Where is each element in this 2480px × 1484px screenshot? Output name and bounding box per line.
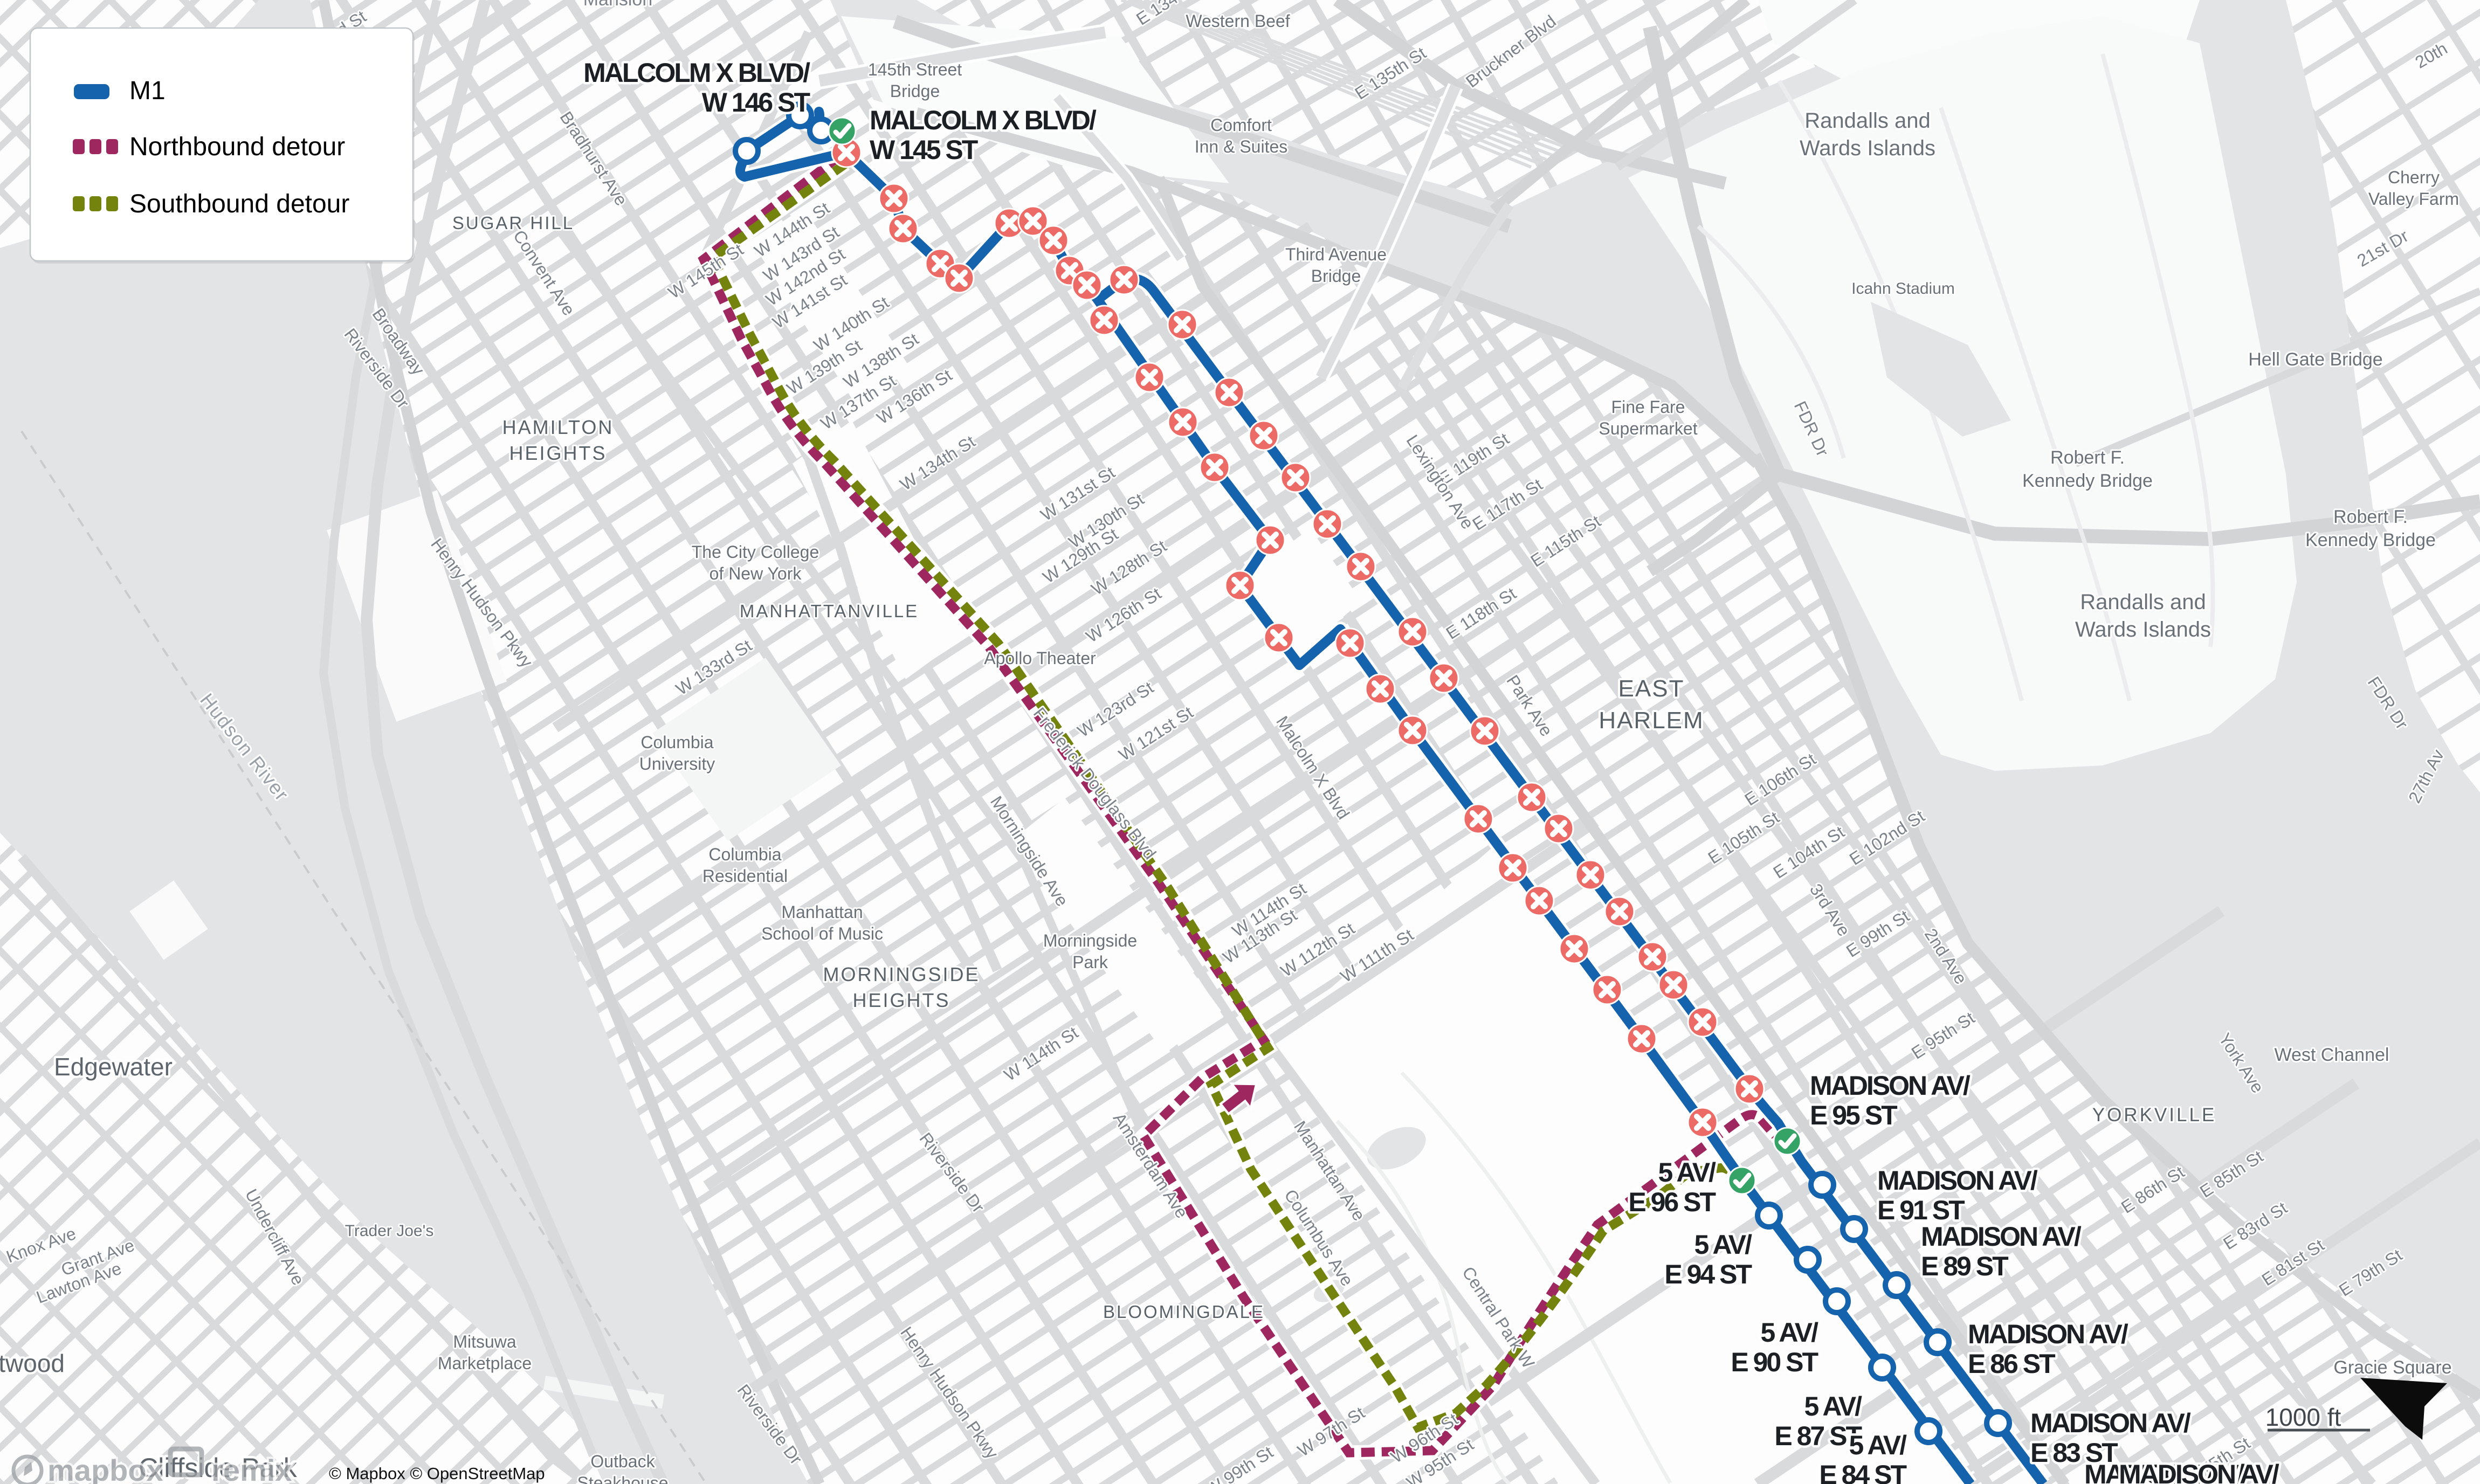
svg-text:E 89 ST: E 89 ST (1921, 1251, 2008, 1281)
svg-text:Northbound detour: Northbound detour (129, 133, 345, 161)
svg-text:E 84 ST: E 84 ST (1819, 1460, 1906, 1484)
svg-text:MADISON AV/: MADISON AV/ (1810, 1071, 1971, 1101)
svg-text:E 90 ST: E 90 ST (1731, 1347, 1818, 1377)
svg-text:Hell Gate Bridge: Hell Gate Bridge (2248, 349, 2382, 370)
svg-text:145th Street: 145th Street (868, 60, 962, 79)
svg-text:The City College: The City College (692, 542, 819, 562)
svg-text:5 AV/: 5 AV/ (1849, 1430, 1907, 1460)
svg-text:Steakhouse: Steakhouse (577, 1473, 668, 1484)
svg-text:Mitsuwa: Mitsuwa (453, 1332, 516, 1351)
svg-text:E 95 ST: E 95 ST (1810, 1100, 1897, 1130)
svg-text:Western Beef: Western Beef (1186, 11, 1290, 31)
svg-text:Gracie Square: Gracie Square (2333, 1357, 2451, 1378)
svg-text:1000 ft: 1000 ft (2265, 1403, 2341, 1431)
svg-text:E 91 ST: E 91 ST (1877, 1195, 1965, 1225)
svg-text:Supermarket: Supermarket (1599, 419, 1697, 438)
svg-text:MADISON AV/: MADISON AV/ (1968, 1319, 2128, 1349)
svg-text:Columbia: Columbia (708, 845, 781, 864)
svg-text:Robert F.: Robert F. (2333, 507, 2408, 527)
svg-text:Outback: Outback (590, 1452, 655, 1471)
svg-text:Cherry: Cherry (2388, 168, 2440, 187)
svg-text:Inn & Suites: Inn & Suites (1195, 137, 1288, 156)
svg-text:Kennedy Bridge: Kennedy Bridge (2022, 471, 2153, 491)
svg-text:MORNINGSIDE: MORNINGSIDE (823, 963, 980, 985)
svg-text:W 145 ST: W 145 ST (870, 135, 978, 165)
svg-text:HARLEM: HARLEM (1599, 707, 1704, 734)
svg-text:HAMILTON: HAMILTON (502, 416, 614, 438)
svg-text:mapbox: mapbox (47, 1453, 163, 1484)
svg-text:BLOOMINGDALE: BLOOMINGDALE (1103, 1302, 1265, 1322)
svg-text:MADISON AV/: MADISON AV/ (1877, 1165, 2038, 1196)
svg-text:Kennedy Bridge: Kennedy Bridge (2305, 530, 2436, 550)
svg-text:HEIGHTS: HEIGHTS (509, 442, 607, 464)
svg-text:Third Avenue: Third Avenue (1285, 245, 1387, 264)
svg-text:antwood: antwood (0, 1349, 65, 1377)
svg-text:Southbound detour: Southbound detour (129, 190, 349, 218)
svg-text:M1: M1 (129, 77, 166, 105)
svg-text:Randalls and: Randalls and (2080, 590, 2206, 614)
svg-text:Edgewater: Edgewater (54, 1053, 173, 1081)
svg-text:5 AV/: 5 AV/ (1694, 1230, 1753, 1260)
svg-text:of New York: of New York (709, 564, 802, 583)
svg-text:remix: remix (211, 1453, 292, 1484)
svg-text:Park: Park (1072, 952, 1108, 972)
svg-text:MADISON AV/: MADISON AV/ (1921, 1221, 2082, 1252)
svg-text:E 94 ST: E 94 ST (1664, 1259, 1752, 1289)
svg-text:E 96 ST: E 96 ST (1628, 1187, 1716, 1217)
svg-text:Residential: Residential (702, 866, 788, 886)
svg-text:Bridge: Bridge (1311, 266, 1361, 286)
svg-text:Columbia: Columbia (640, 733, 713, 752)
svg-text:EAST: EAST (1618, 675, 1685, 702)
svg-text:W 146 ST: W 146 ST (702, 87, 810, 118)
svg-text:MALCOLM X BLVD/: MALCOLM X BLVD/ (583, 58, 810, 88)
svg-text:5 AV/: 5 AV/ (1761, 1317, 1819, 1348)
svg-text:MADISON AV/: MADISON AV/ (2030, 1408, 2191, 1438)
svg-text:5 AV/: 5 AV/ (1804, 1391, 1863, 1421)
svg-text:E 86 ST: E 86 ST (1968, 1349, 2055, 1379)
svg-text:West Channel: West Channel (2275, 1045, 2389, 1065)
svg-text:Robert F.: Robert F. (2050, 447, 2125, 468)
svg-text:MANHATTANVILLE: MANHATTANVILLE (740, 601, 919, 621)
svg-text:Mansion: Mansion (583, 0, 653, 10)
svg-text:Manhattan: Manhattan (781, 902, 863, 922)
svg-text:Fine Fare: Fine Fare (1611, 397, 1685, 417)
svg-text:Comfort: Comfort (1210, 115, 1272, 135)
svg-text:Randalls and: Randalls and (1804, 109, 1931, 133)
svg-text:University: University (639, 754, 715, 774)
svg-text:Trader Joe's: Trader Joe's (345, 1222, 434, 1240)
svg-text:© Mapbox © OpenStreetMap: © Mapbox © OpenStreetMap (329, 1464, 545, 1483)
svg-text:Bridge: Bridge (890, 81, 940, 101)
svg-text:Icahn Stadium: Icahn Stadium (1851, 280, 1955, 298)
svg-text:School of Music: School of Music (761, 924, 883, 943)
svg-text:Valley Farm: Valley Farm (2368, 189, 2459, 209)
svg-text:Wards Islands: Wards Islands (2075, 618, 2211, 641)
svg-text:MADISON AV/: MADISON AV/ (2119, 1459, 2279, 1484)
svg-text:MALCOLM X BLVD/: MALCOLM X BLVD/ (870, 105, 1097, 135)
svg-text:YORKVILLE: YORKVILLE (2092, 1105, 2217, 1126)
svg-text:Marketplace: Marketplace (438, 1354, 532, 1373)
svg-text:Morningside: Morningside (1043, 931, 1137, 950)
svg-text:Apollo Theater: Apollo Theater (984, 648, 1096, 668)
svg-text:HEIGHTS: HEIGHTS (852, 989, 950, 1011)
svg-text:5 AV/: 5 AV/ (1658, 1157, 1717, 1188)
svg-text:SUGAR HILL: SUGAR HILL (452, 213, 574, 233)
svg-text:Wards Islands: Wards Islands (1800, 136, 1935, 160)
